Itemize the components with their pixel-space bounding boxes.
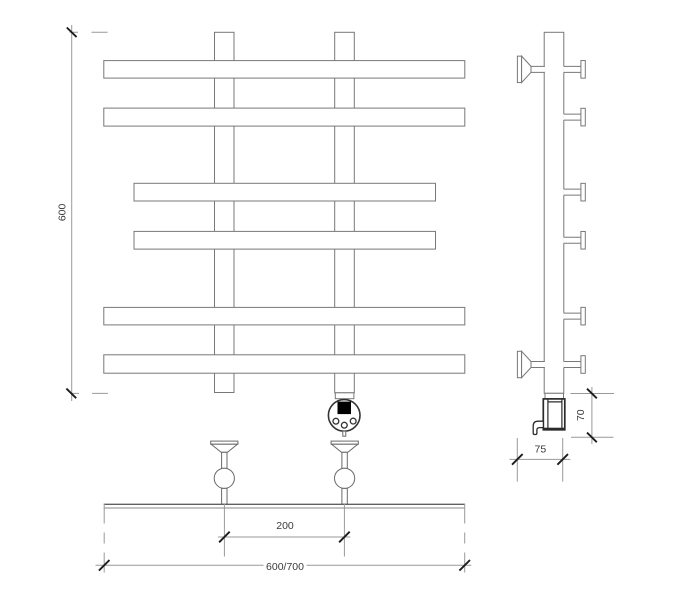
svg-text:600/700: 600/700 xyxy=(266,561,304,573)
svg-text:200: 200 xyxy=(276,520,294,532)
svg-text:75: 75 xyxy=(535,443,547,455)
svg-text:600: 600 xyxy=(56,203,68,221)
svg-text:70: 70 xyxy=(575,409,587,421)
